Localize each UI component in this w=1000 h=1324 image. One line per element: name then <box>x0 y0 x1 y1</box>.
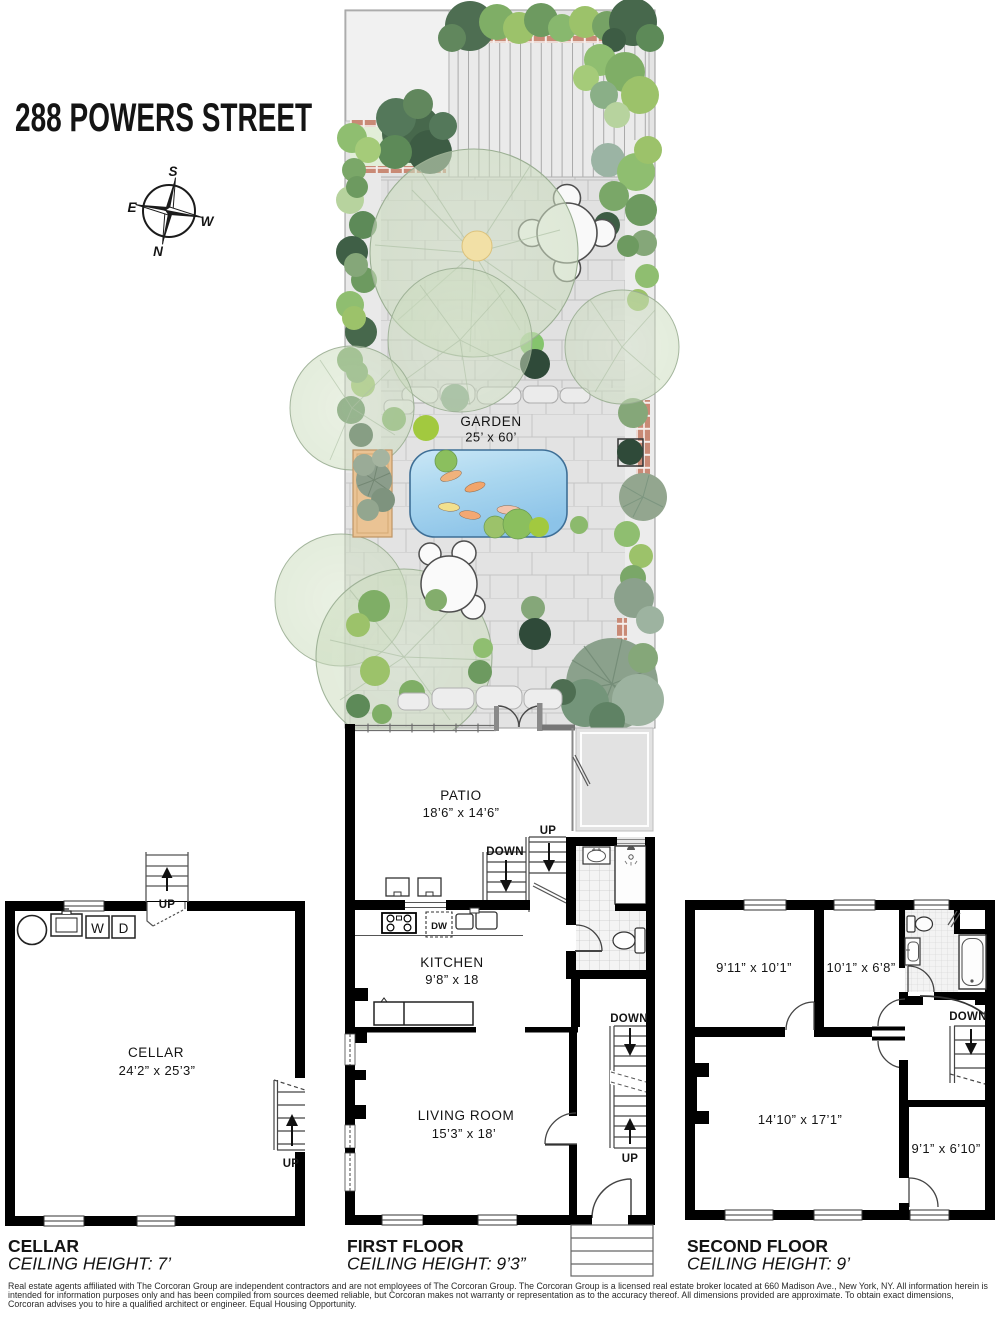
svg-text:CELLAR: CELLAR <box>128 1045 184 1060</box>
svg-text:9’8” x 18: 9’8” x 18 <box>425 972 478 987</box>
svg-text:25’ x 60’: 25’ x 60’ <box>465 430 517 445</box>
svg-text:10’1” x 6’8”: 10’1” x 6’8” <box>826 960 895 975</box>
svg-text:CEILING HEIGHT: 9’: CEILING HEIGHT: 9’ <box>687 1254 851 1274</box>
svg-text:DW: DW <box>431 921 447 932</box>
svg-text:E: E <box>127 200 137 215</box>
svg-text:W: W <box>201 214 215 229</box>
svg-text:288 POWERS STREET: 288 POWERS STREET <box>15 96 312 140</box>
svg-text:DOWN: DOWN <box>610 1013 648 1025</box>
svg-text:24’2” x 25’3”: 24’2” x 25’3” <box>119 1063 196 1078</box>
svg-text:PATIO: PATIO <box>440 788 482 803</box>
svg-text:9’11” x 10’1”: 9’11” x 10’1” <box>716 960 792 975</box>
svg-text:DOWN: DOWN <box>949 1011 987 1023</box>
svg-text:Corcoran advises you to hire a: Corcoran advises you to hire a qualified… <box>8 1299 357 1309</box>
svg-text:15’3” x 18’: 15’3” x 18’ <box>432 1126 496 1141</box>
svg-text:UP: UP <box>283 1158 300 1170</box>
svg-text:CEILING HEIGHT: 9’3”: CEILING HEIGHT: 9’3” <box>347 1254 527 1274</box>
svg-text:CEILING HEIGHT: 7’: CEILING HEIGHT: 7’ <box>8 1254 172 1274</box>
svg-text:KITCHEN: KITCHEN <box>420 955 483 970</box>
svg-text:D: D <box>119 921 129 936</box>
svg-text:LIVING ROOM: LIVING ROOM <box>418 1108 515 1123</box>
svg-text:GARDEN: GARDEN <box>460 414 521 429</box>
svg-text:UP: UP <box>622 1153 639 1165</box>
svg-text:14’10” x 17’1”: 14’10” x 17’1” <box>758 1112 842 1127</box>
svg-text:S: S <box>168 164 177 179</box>
svg-text:W: W <box>91 921 104 936</box>
svg-text:N: N <box>153 244 163 259</box>
svg-text:UP: UP <box>540 825 557 837</box>
svg-text:UP: UP <box>159 899 176 911</box>
svg-text:18’6” x 14’6”: 18’6” x 14’6” <box>423 805 500 820</box>
svg-text:DOWN: DOWN <box>486 846 524 858</box>
svg-text:9’1” x 6’10”: 9’1” x 6’10” <box>911 1141 980 1156</box>
